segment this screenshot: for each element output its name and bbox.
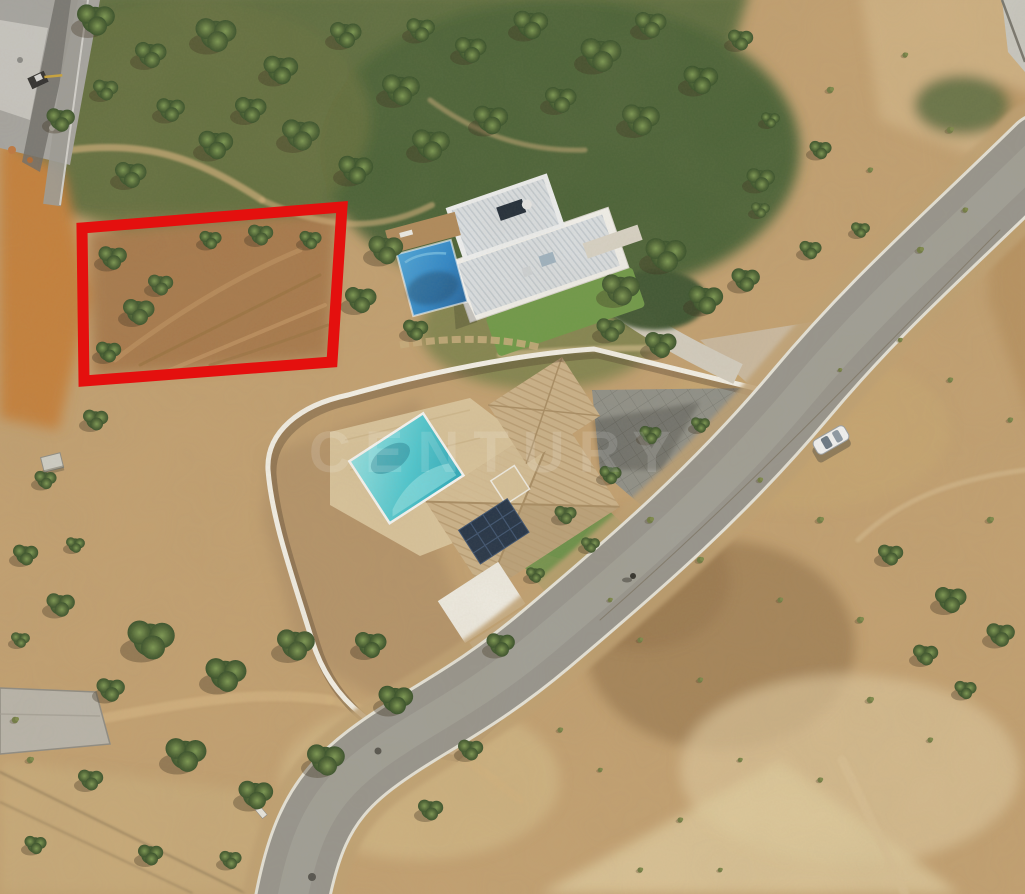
aerial-photo: CENTURY — [0, 0, 1025, 894]
watermark-text: CENTURY — [309, 420, 685, 485]
aerial-photo-canvas: CENTURY — [0, 0, 1025, 894]
